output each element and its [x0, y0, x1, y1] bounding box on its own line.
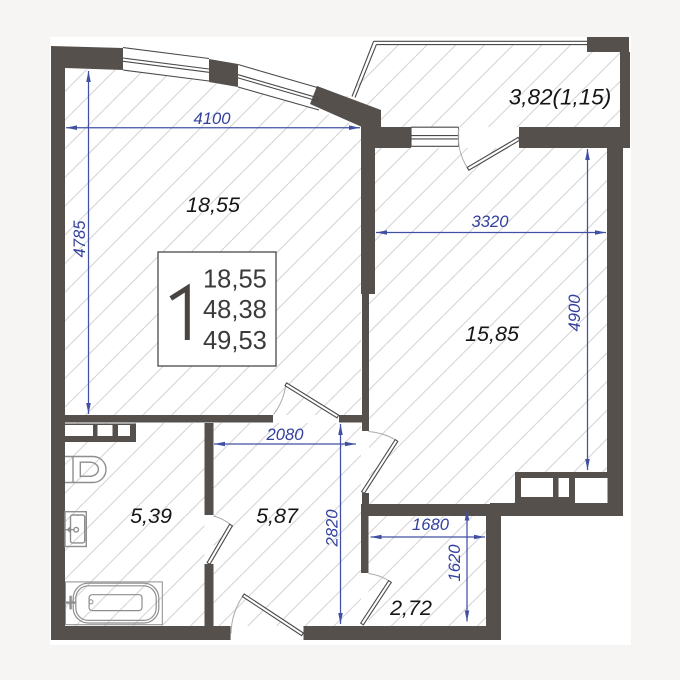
svg-text:49,53: 49,53: [203, 327, 267, 355]
svg-text:48,38: 48,38: [203, 296, 267, 324]
svg-text:1680: 1680: [412, 515, 450, 534]
svg-text:5,39: 5,39: [130, 504, 172, 528]
svg-text:3,82(1,15): 3,82(1,15): [509, 85, 612, 110]
svg-text:5,87: 5,87: [256, 504, 299, 528]
svg-text:2,72: 2,72: [389, 596, 432, 620]
svg-text:18,55: 18,55: [186, 193, 241, 217]
svg-text:4100: 4100: [194, 109, 232, 128]
svg-text:4785: 4785: [70, 220, 89, 258]
svg-text:1620: 1620: [445, 544, 464, 582]
svg-text:15,85: 15,85: [465, 322, 520, 346]
svg-text:4900: 4900: [565, 294, 584, 332]
svg-text:18,55: 18,55: [203, 265, 267, 293]
svg-text:3320: 3320: [472, 212, 510, 231]
svg-text:2820: 2820: [323, 509, 342, 548]
svg-text:2080: 2080: [266, 425, 305, 444]
